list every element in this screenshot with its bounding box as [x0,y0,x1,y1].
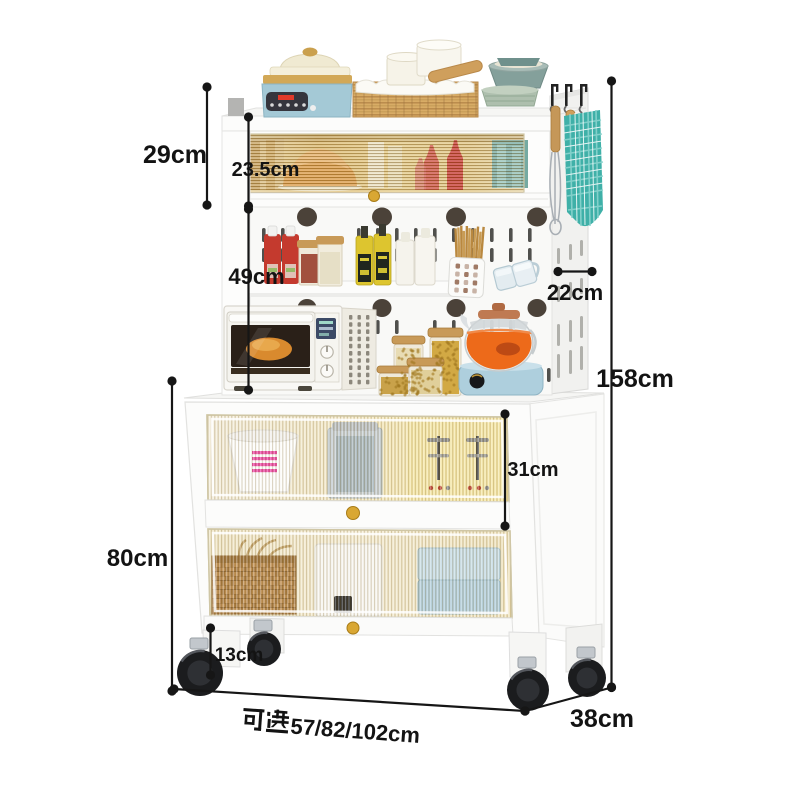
svg-text:31cm: 31cm [507,459,558,481]
svg-text:22cm: 22cm [547,280,603,305]
svg-text:23.5cm: 23.5cm [232,159,300,181]
svg-text:158cm: 158cm [596,365,674,393]
svg-text:29cm: 29cm [143,141,207,169]
svg-text:38cm: 38cm [570,705,634,733]
svg-text:80cm: 80cm [107,545,168,572]
svg-text:13cm: 13cm [215,645,264,666]
svg-text:49cm: 49cm [228,264,284,289]
